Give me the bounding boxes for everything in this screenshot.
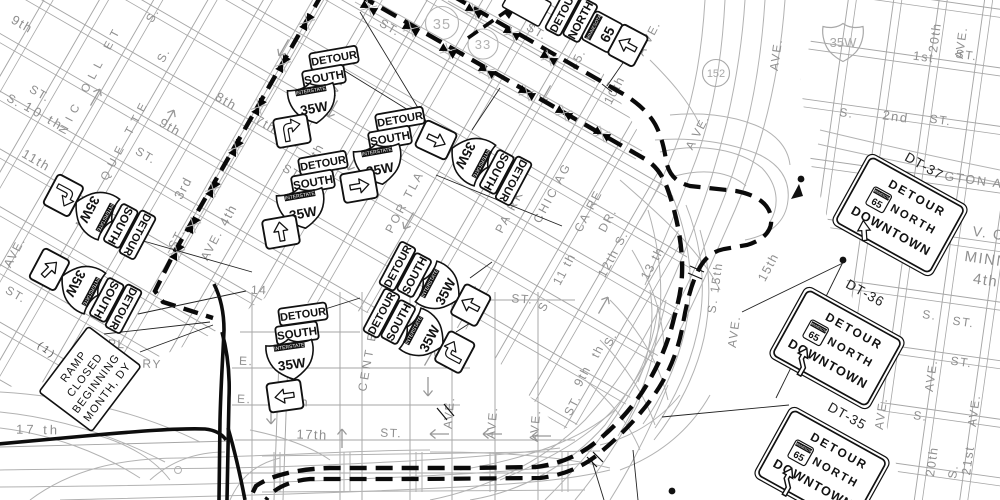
- svg-text:152: 152: [707, 68, 725, 80]
- svg-text:4th: 4th: [972, 270, 999, 290]
- svg-text:RY: RY: [142, 357, 162, 372]
- svg-text:1st: 1st: [912, 49, 935, 66]
- svg-text:E.: E.: [237, 392, 252, 406]
- svg-text:35: 35: [433, 17, 451, 33]
- svg-text:S.: S.: [838, 105, 854, 121]
- svg-text:33: 33: [475, 37, 491, 52]
- svg-text:ST.: ST.: [380, 426, 402, 441]
- svg-text:17 th: 17 th: [16, 422, 60, 438]
- svg-text:14: 14: [251, 283, 268, 298]
- svg-text:S.: S.: [921, 307, 937, 323]
- svg-text:17th: 17th: [296, 426, 328, 442]
- svg-text:AVE.: AVE.: [527, 409, 544, 443]
- svg-text:S.: S.: [912, 408, 928, 424]
- svg-text:35W: 35W: [830, 35, 857, 50]
- svg-text:ST.: ST.: [511, 291, 534, 306]
- svg-text:E.: E.: [239, 354, 254, 368]
- svg-text:AVE.: AVE.: [441, 396, 458, 430]
